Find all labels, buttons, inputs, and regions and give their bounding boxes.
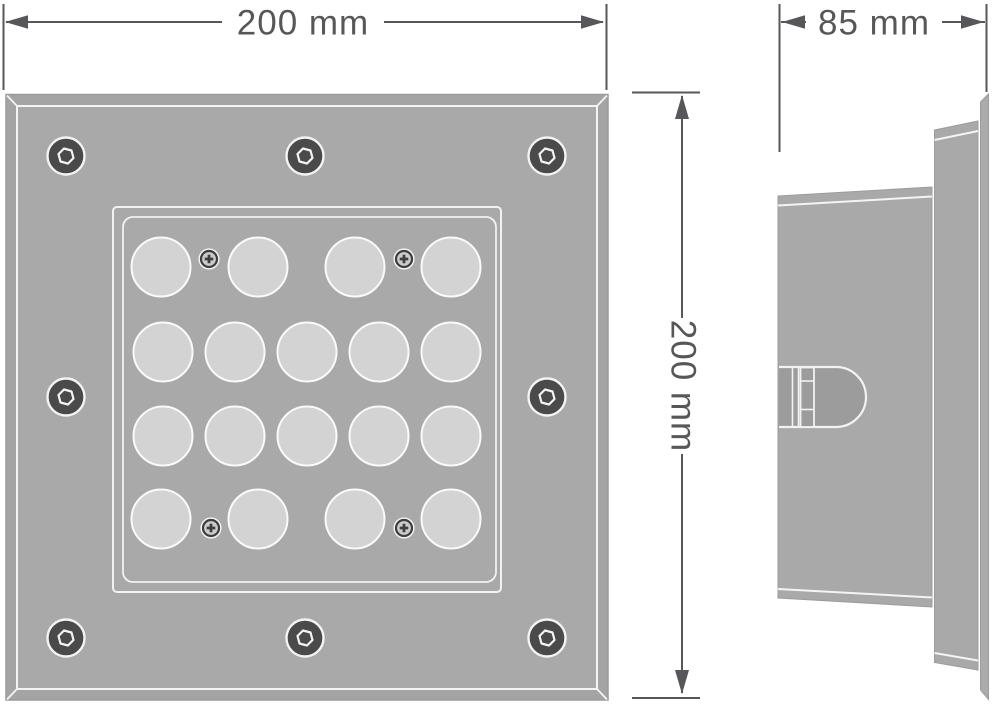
- phillips-screw: [394, 518, 414, 538]
- technical-drawing-page: 200 mm 85 mm 200 mm: [0, 0, 1000, 704]
- arrow-left-icon: [782, 15, 805, 29]
- phillips-screw: [394, 249, 414, 269]
- led-lens: [326, 238, 385, 297]
- front-panel-face: [17, 106, 597, 689]
- side-collar: [935, 121, 979, 670]
- phillips-screw: [199, 249, 219, 269]
- arrow-right-icon: [581, 15, 604, 29]
- width-dimension-label: 200 mm: [237, 4, 369, 43]
- led-lens: [206, 407, 265, 466]
- led-lens: [422, 490, 481, 549]
- height-dimension-label: 200 mm: [664, 320, 703, 452]
- dimension-height: 200 mm: [632, 93, 703, 699]
- phillips-screw: [201, 518, 221, 538]
- led-lens: [206, 323, 265, 382]
- led-lens: [229, 238, 288, 297]
- led-lens: [229, 490, 288, 549]
- hex-screw-head: [529, 620, 566, 657]
- hex-screw-head: [529, 138, 566, 175]
- dimension-width: 200 mm: [4, 3, 607, 90]
- led-lens: [278, 323, 337, 382]
- hex-screw-head: [48, 138, 85, 175]
- arrow-right-icon: [961, 15, 984, 29]
- hex-screw: [287, 620, 324, 657]
- hex-screw-head: [48, 620, 85, 657]
- hex-screw: [287, 138, 324, 175]
- led-lens: [132, 238, 191, 297]
- luminaire-dimension-drawing: 200 mm 85 mm 200 mm: [0, 0, 1000, 704]
- led-lens: [326, 490, 385, 549]
- gland-hinge-bar: [801, 368, 815, 428]
- hex-screw-head: [287, 620, 324, 657]
- depth-dimension-label: 85 mm: [818, 4, 930, 43]
- side-cable-gland-detail: [779, 367, 866, 427]
- hex-screw: [48, 138, 85, 175]
- side-faceplate-edge: [981, 94, 989, 700]
- hex-screw-head: [529, 379, 566, 416]
- led-lens: [350, 323, 409, 382]
- hex-screw: [529, 620, 566, 657]
- led-lens: [422, 238, 481, 297]
- arrow-down-icon: [675, 670, 689, 694]
- hex-screw-head: [48, 379, 85, 416]
- led-lens: [134, 407, 193, 466]
- led-lens: [350, 407, 409, 466]
- side-view: [778, 94, 989, 700]
- led-lens: [278, 407, 337, 466]
- hex-screw: [529, 138, 566, 175]
- arrow-left-icon: [5, 15, 28, 29]
- led-lens: [422, 407, 481, 466]
- arrow-up-icon: [675, 95, 689, 119]
- hex-screw: [529, 379, 566, 416]
- led-lens: [132, 490, 191, 549]
- led-lens: [422, 323, 481, 382]
- hex-screw-head: [287, 138, 324, 175]
- hex-screw: [48, 620, 85, 657]
- led-lens: [134, 323, 193, 382]
- front-view: [6, 95, 608, 701]
- hex-screw: [48, 379, 85, 416]
